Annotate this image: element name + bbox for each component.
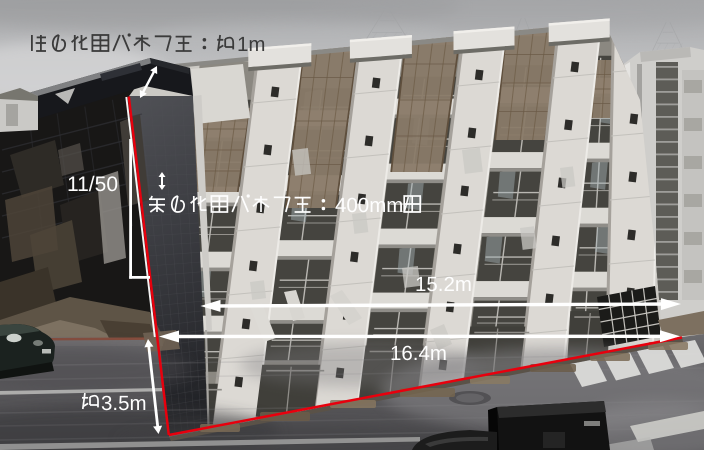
svg-text:400mm/: 400mm/ <box>335 194 409 217</box>
svg-text:3.5m: 3.5m <box>101 392 147 415</box>
svg-text:1m: 1m <box>237 33 265 56</box>
svg-text:16.4m: 16.4m <box>390 342 447 365</box>
svg-text:11/50: 11/50 <box>67 173 118 196</box>
svg-text:15.2m: 15.2m <box>415 273 472 296</box>
